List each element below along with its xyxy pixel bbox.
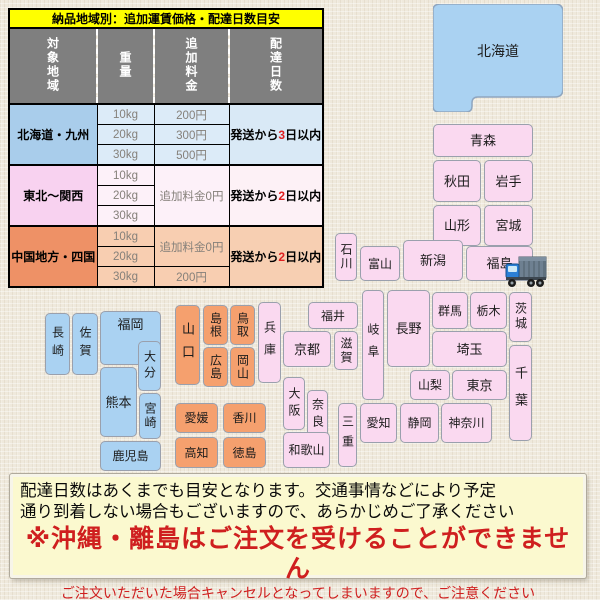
prefecture-wakayama: 和歌山 — [283, 432, 330, 468]
weight-cell: 20kg — [97, 186, 154, 206]
prefecture-shimane: 島根 — [203, 305, 228, 345]
table-row: 東北〜関西 10kg 追加料金0円 発送から2日以内 — [9, 165, 323, 186]
shipping-info-graphic: 北海道青森秋田岩手山形宮城石川富山新潟福島福井兵庫京都滋賀岐阜長野群馬栃木茨城埼… — [0, 0, 600, 600]
fee-cell: 300円 — [154, 125, 229, 145]
prefecture-label: 兵庫 — [264, 321, 276, 365]
prefecture-label: 青森 — [470, 134, 496, 147]
prefecture-toyama: 富山 — [360, 246, 400, 281]
prefecture-label: 香川 — [232, 412, 256, 424]
header-delivery-days: 配達日数 — [229, 28, 323, 104]
fee-cell-merged: 追加料金0円 — [154, 165, 229, 226]
prefecture-gifu: 岐阜 — [362, 290, 384, 400]
fee-cell: 200円 — [154, 104, 229, 125]
prefecture-label: 広島 — [210, 354, 222, 380]
prefecture-kyoto: 京都 — [283, 331, 331, 367]
weight-cell: 10kg — [97, 226, 154, 247]
prefecture-label: 島根 — [210, 312, 222, 338]
notice-line-2: 通り到着しない場合もございますので、あらかじめご了承ください — [20, 502, 576, 523]
prefecture-label: 北海道 — [433, 4, 563, 97]
prefecture-label: 奈良 — [312, 398, 324, 432]
prefecture-label: 埼玉 — [456, 343, 482, 356]
delivery-notice-box: 配達日数はあくまでも目安となります。交通事情などにより予定 通り到着しない場合も… — [10, 474, 586, 578]
weight-cell: 10kg — [97, 104, 154, 125]
prefecture-label: 山形 — [444, 219, 470, 232]
prefecture-kanagawa: 神奈川 — [441, 403, 492, 443]
prefecture-label: 山口 — [181, 322, 194, 368]
prefecture-label: 和歌山 — [288, 444, 324, 456]
weight-cell: 30kg — [97, 267, 154, 288]
prefecture-label: 福岡 — [117, 318, 143, 331]
prefecture-chiba: 千葉 — [509, 345, 532, 441]
prefecture-mie: 三重 — [338, 403, 357, 467]
prefecture-iwate: 岩手 — [484, 160, 533, 202]
prefecture-shiga: 滋賀 — [334, 331, 358, 370]
cancel-notice-text: ご注文いただいた場合キャンセルとなってしまいますので、ご注意ください — [20, 584, 576, 600]
weight-cell: 30kg — [97, 206, 154, 227]
prefecture-tochigi: 栃木 — [470, 292, 507, 329]
prefecture-label: 高知 — [184, 447, 208, 459]
prefecture-label: 鹿児島 — [112, 450, 148, 462]
prefecture-saitama: 埼玉 — [432, 331, 507, 367]
prefecture-nagano: 長野 — [387, 290, 430, 367]
prefecture-label: 千葉 — [514, 366, 527, 420]
prefecture-tokushima: 徳島 — [223, 437, 266, 468]
prefecture-nagasaki: 長崎 — [45, 313, 70, 375]
delivery-days-cell: 発送から2日以内 — [229, 226, 323, 287]
prefecture-hiroshima: 広島 — [203, 347, 228, 387]
prefecture-kagawa: 香川 — [223, 403, 266, 433]
prefecture-label: 京都 — [294, 343, 320, 356]
region-label-hokkaido-kyushu: 北海道・九州 — [9, 104, 97, 165]
prefecture-okayama: 岡山 — [230, 347, 255, 387]
prefecture-label: 大阪 — [288, 387, 300, 421]
prefecture-label: 石川 — [340, 243, 352, 271]
weight-cell: 10kg — [97, 165, 154, 186]
weight-cell: 20kg — [97, 247, 154, 267]
delivery-days-cell: 発送から2日以内 — [229, 165, 323, 226]
prefecture-label: 長崎 — [52, 326, 64, 362]
header-additional-fee: 追加料金 — [154, 28, 229, 104]
header-target-region: 対象地域 — [9, 28, 97, 104]
prefecture-yamaguchi: 山口 — [175, 305, 200, 385]
prefecture-osaka: 大阪 — [283, 377, 305, 430]
prefecture-label: 福井 — [321, 310, 345, 322]
prefecture-gunma: 群馬 — [432, 292, 468, 329]
okinawa-warning-text: ※沖縄・離島はご注文を受けることができません — [20, 524, 576, 584]
prefecture-kagoshima: 鹿児島 — [100, 441, 161, 471]
prefecture-tottori: 鳥取 — [230, 305, 255, 345]
prefecture-niigata: 新潟 — [403, 240, 463, 281]
table-title: 納品地域別：追加運賃価格・配達日数目安 — [9, 9, 323, 28]
delivery-days-cell: 発送から3日以内 — [229, 104, 323, 165]
prefecture-label: 岐阜 — [367, 323, 379, 367]
prefecture-label: 宮城 — [495, 219, 521, 232]
prefecture-label: 大分 — [144, 350, 156, 382]
prefecture-label: 徳島 — [232, 447, 256, 459]
prefecture-label: 岡山 — [237, 354, 249, 380]
prefecture-miyagi: 宮城 — [484, 205, 533, 246]
prefecture-label: 秋田 — [444, 175, 470, 188]
prefecture-label: 新潟 — [420, 254, 446, 267]
prefecture-kumamoto: 熊本 — [100, 367, 137, 437]
weight-cell: 20kg — [97, 125, 154, 145]
prefecture-label: 岩手 — [495, 175, 521, 188]
region-label-tohoku-kansai: 東北〜関西 — [9, 165, 97, 226]
prefecture-label: 山梨 — [418, 379, 442, 391]
prefecture-label: 神奈川 — [448, 417, 484, 429]
notice-line-1: 配達日数はあくまでも目安となります。交通事情などにより予定 — [20, 481, 576, 502]
prefecture-label: 静岡 — [407, 417, 431, 429]
delivery-truck-icon — [504, 254, 548, 290]
prefecture-aichi: 愛知 — [360, 403, 397, 443]
prefecture-tokyo: 東京 — [452, 370, 507, 400]
prefecture-label: 茨城 — [515, 302, 527, 332]
prefecture-label: 長野 — [395, 322, 421, 335]
prefecture-label: 鳥取 — [237, 312, 249, 338]
prefecture-oita: 大分 — [138, 341, 161, 391]
fee-cell: 200円 — [154, 267, 229, 288]
prefecture-yamanashi: 山梨 — [410, 370, 450, 400]
prefecture-kochi: 高知 — [175, 437, 218, 468]
prefecture-label: 群馬 — [438, 305, 462, 317]
prefecture-label: 富山 — [368, 258, 392, 270]
prefecture-aomori: 青森 — [433, 124, 533, 157]
prefecture-ibaraki: 茨城 — [509, 292, 532, 342]
table-row: 中国地方・四国 10kg 追加料金0円 発送から2日以内 — [9, 226, 323, 247]
prefecture-saga: 佐賀 — [72, 313, 98, 375]
prefecture-hyogo: 兵庫 — [258, 302, 281, 383]
prefecture-hokkaido: 北海道 — [433, 4, 563, 112]
prefecture-label: 三重 — [342, 415, 354, 455]
prefecture-label: 佐賀 — [79, 326, 91, 362]
prefecture-akita: 秋田 — [433, 160, 481, 202]
fee-cell-merged: 追加料金0円 — [154, 226, 229, 267]
fee-cell: 500円 — [154, 145, 229, 166]
prefecture-ishikawa: 石川 — [335, 233, 357, 281]
prefecture-label: 東京 — [466, 379, 492, 392]
prefecture-label: 愛媛 — [184, 412, 208, 424]
table-row: 北海道・九州 10kg 200円 発送から3日以内 — [9, 104, 323, 125]
prefecture-label: 栃木 — [476, 305, 500, 317]
prefecture-label: 宮崎 — [144, 402, 156, 430]
prefecture-miyazaki: 宮崎 — [139, 393, 161, 439]
prefecture-label: 滋賀 — [340, 337, 352, 365]
region-label-chugoku-shikoku: 中国地方・四国 — [9, 226, 97, 287]
shipping-fee-table: 納品地域別：追加運賃価格・配達日数目安 対象地域 重量 追加料金 配達日数 北海… — [8, 8, 324, 288]
prefecture-ehime: 愛媛 — [175, 403, 218, 433]
prefecture-label: 熊本 — [105, 396, 131, 409]
header-weight: 重量 — [97, 28, 154, 104]
prefecture-fukui: 福井 — [308, 302, 358, 329]
prefecture-shizuoka: 静岡 — [400, 403, 439, 443]
weight-cell: 30kg — [97, 145, 154, 166]
prefecture-label: 愛知 — [366, 417, 390, 429]
